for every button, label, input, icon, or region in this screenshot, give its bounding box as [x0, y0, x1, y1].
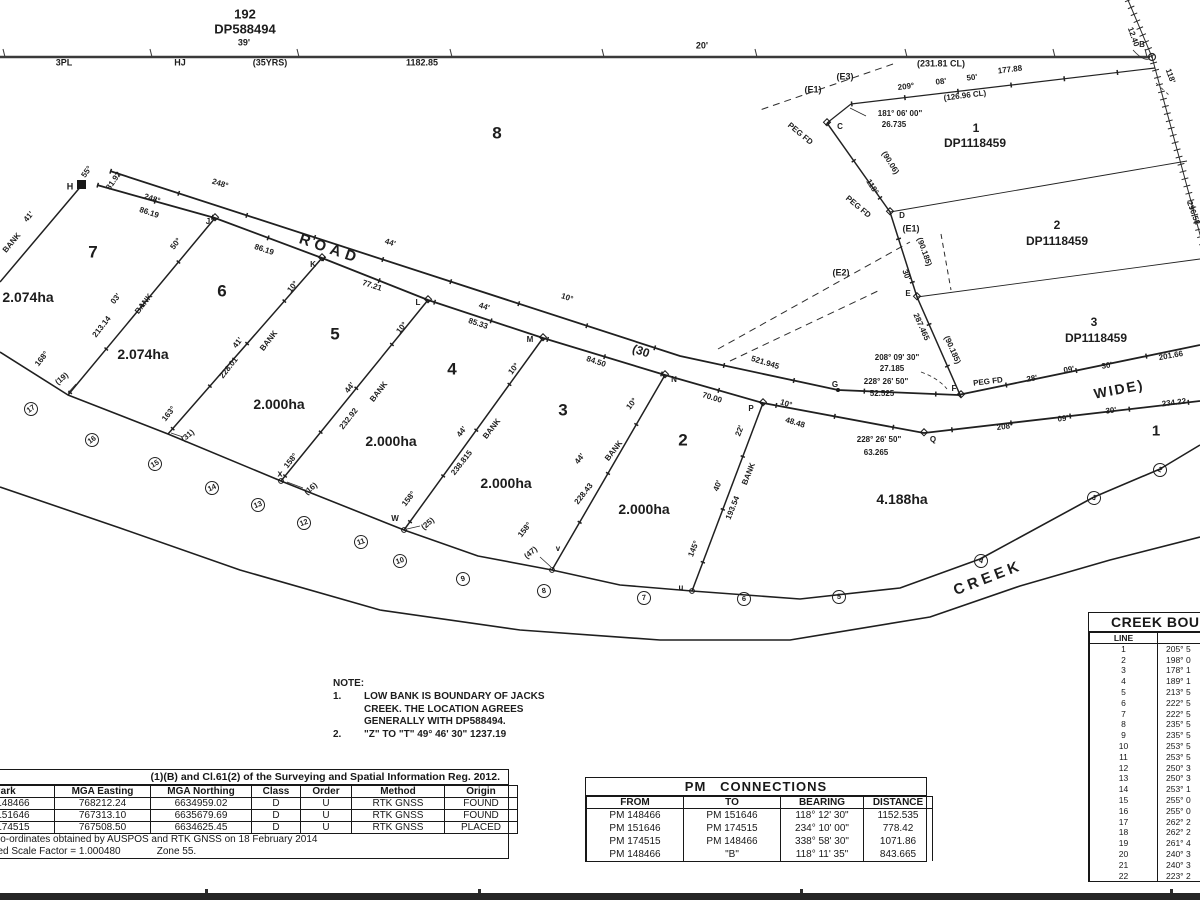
plan-label: C — [837, 123, 843, 131]
table-cell: PM 151646 — [684, 809, 781, 822]
table-cell: 2 — [1090, 654, 1158, 665]
scale-bar-tick — [205, 889, 208, 893]
table-row: 5213° 5 — [1090, 687, 1200, 698]
pm-connections-table: PM CONNECTIONSFROMTOBEARINGDISTANCEPM 14… — [585, 777, 927, 862]
creek-banks — [0, 352, 1200, 640]
table-row: 3178° 1 — [1090, 665, 1200, 676]
table-cell: 205° 5 — [1158, 644, 1200, 655]
table-row: PM 148466PM 151646118° 12' 30"1152.535 — [587, 809, 933, 822]
note-block: NOTE: 1. LOW BANK IS BOUNDARY OF JACKS C… — [333, 678, 545, 742]
note-item-text: "Z" TO "T" 49° 46' 30" 1237.19 — [364, 729, 506, 742]
plan-label: 4 — [447, 361, 456, 378]
plan-label: K — [310, 261, 316, 269]
table-cell: PM 148466 — [587, 809, 684, 822]
table-footer: Co-ordinates obtained by AUSPOS and RTK … — [0, 834, 508, 846]
plan-label: E — [905, 290, 910, 298]
plan-label: (E1) — [902, 225, 919, 234]
plan-label: 3 — [1091, 316, 1098, 328]
table-cell: 338° 58' 30" — [781, 835, 864, 848]
table-cell: 255° 0 — [1158, 805, 1200, 816]
table-cell: 843.665 — [864, 848, 933, 861]
table-row: PM 174515767508.506634625.45DURTK GNSSPL… — [0, 822, 518, 834]
table-cell: 234° 10' 00" — [781, 822, 864, 835]
table-cell: FOUND — [445, 810, 518, 822]
table-row: PM 148466"B"118° 11' 35"843.665 — [587, 848, 933, 861]
column-header: Class — [252, 786, 301, 798]
column-header: Method — [352, 786, 445, 798]
column-header: MGA Easting — [55, 786, 151, 798]
plan-label: P — [748, 405, 753, 413]
column-header: DISTANCE — [864, 797, 933, 809]
table-cell: PM 174515 — [684, 822, 781, 835]
column-header: Origin — [445, 786, 518, 798]
table-cell: 118° 11' 35" — [781, 848, 864, 861]
table-row: 11253° 5 — [1090, 751, 1200, 762]
plan-label: 208° 09' 30" — [875, 354, 919, 362]
table-row: 1205° 5 — [1090, 644, 1200, 655]
table-cell: PM 148466 — [587, 848, 684, 861]
label-leaders — [68, 384, 551, 567]
table-cell: PM 151646 — [0, 810, 55, 822]
plan-label: 1 — [1152, 424, 1160, 439]
plan-label: 50' — [966, 73, 978, 82]
plan-label: F — [952, 385, 957, 393]
table-cell: 213° 5 — [1158, 687, 1200, 698]
column-header: LINE — [1090, 633, 1158, 644]
table-cell: 16 — [1090, 805, 1158, 816]
plan-label: 26.735 — [882, 121, 906, 129]
table-title: PM CONNECTIONS — [586, 778, 926, 796]
table-cell: 6634959.02 — [151, 798, 252, 810]
station-number: 6 — [737, 592, 751, 606]
plan-label: W — [391, 515, 399, 523]
table-row: 4189° 1 — [1090, 676, 1200, 687]
column-header: BEARING — [781, 797, 864, 809]
table-cell: 222° 5 — [1158, 697, 1200, 708]
plan-label: 08' — [935, 77, 947, 86]
table-cell: 17 — [1090, 816, 1158, 827]
note-heading: NOTE: — [333, 678, 545, 691]
plan-label: 39' — [238, 39, 250, 48]
plan-label: 5 — [330, 326, 339, 343]
table-cell: D — [252, 822, 301, 834]
column-header: Order — [301, 786, 352, 798]
road-lines — [97, 171, 1200, 433]
table-cell: 3 — [1090, 665, 1158, 676]
plan-label: 7 — [88, 244, 97, 261]
table-cell: 235° 5 — [1158, 719, 1200, 730]
plan-label: H — [67, 183, 74, 192]
table-cell: PM 174515 — [587, 835, 684, 848]
table-cell: 6 — [1090, 697, 1158, 708]
plan-label: 2.074ha — [2, 290, 53, 304]
table-cell: 235° 5 — [1158, 730, 1200, 741]
table-title: (1)(B) and Cl.61(2) of the Surveying and… — [0, 770, 508, 785]
table-cell: 4 — [1090, 676, 1158, 687]
table-cell: PM 151646 — [587, 822, 684, 835]
table-cell: U — [301, 798, 352, 810]
table-cell: 1 — [1090, 644, 1158, 655]
plan-label: 4.188ha — [876, 492, 927, 506]
plan-label: (E1) — [804, 86, 821, 95]
table-cell: 11 — [1090, 751, 1158, 762]
scale-bar-tick — [800, 889, 803, 893]
table-row: 18262° 2 — [1090, 827, 1200, 838]
survey-marks-table: (1)(B) and Cl.61(2) of the Surveying and… — [0, 769, 509, 859]
table-cell: 5 — [1090, 687, 1158, 698]
table-row: 13250° 3 — [1090, 773, 1200, 784]
table-row: PM 151646PM 174515234° 10' 00"778.42 — [587, 822, 933, 835]
plan-label: 1 — [973, 122, 980, 134]
table-cell: 21 — [1090, 859, 1158, 870]
note-item-text: GENERALLY WITH DP588494. — [364, 716, 506, 729]
scale-bar-tick — [478, 889, 481, 893]
table-cell: 14 — [1090, 784, 1158, 795]
table-cell: 6635679.69 — [151, 810, 252, 822]
table-cell: 253° 1 — [1158, 784, 1200, 795]
plan-label: 1182.85 — [406, 59, 438, 68]
column-header: BEARING — [1158, 633, 1200, 644]
table-cell: PLACED — [445, 822, 518, 834]
plan-label: 30' — [1105, 406, 1117, 415]
table-cell: D — [252, 798, 301, 810]
column-header: FROM — [587, 797, 684, 809]
plan-label: 2.074ha — [117, 347, 168, 361]
scale-bar — [0, 893, 1200, 900]
top-boundary-line — [0, 49, 1150, 57]
table-cell: 12 — [1090, 762, 1158, 773]
table-cell: 240° 3 — [1158, 849, 1200, 860]
table-cell: 255° 0 — [1158, 795, 1200, 806]
table-cell: RTK GNSS — [352, 810, 445, 822]
table-row: PM 151646767313.106635679.69DURTK GNSSFO… — [0, 810, 518, 822]
table-row: 9235° 5 — [1090, 730, 1200, 741]
table-cell: U — [301, 810, 352, 822]
plan-label: N — [671, 376, 677, 384]
table-row: 14253° 1 — [1090, 784, 1200, 795]
plan-label: L — [416, 299, 421, 307]
column-header: Mark — [0, 786, 55, 798]
table-footer: Combined Scale Factor = 1.000480 Zone 55… — [0, 846, 508, 858]
plan-label: Q — [930, 436, 936, 444]
table-row: 17262° 2 — [1090, 816, 1200, 827]
plan-label: v — [556, 545, 560, 553]
plan-label: 6 — [217, 283, 226, 300]
plan-label: (E3) — [836, 73, 853, 82]
plan-label: 2.000ha — [480, 476, 531, 490]
plan-label: 2.000ha — [365, 434, 416, 448]
plan-label: G — [832, 381, 838, 389]
plan-label: M — [527, 336, 534, 344]
table-cell: 178° 1 — [1158, 665, 1200, 676]
plan-label: 2 — [678, 432, 687, 449]
table-row: 22223° 2 — [1090, 870, 1200, 881]
table-cell: 7 — [1090, 708, 1158, 719]
note-item-text: CREEK. THE LOCATION AGREES — [364, 704, 523, 717]
table-cell: 15 — [1090, 795, 1158, 806]
table-cell: PM 174515 — [0, 822, 55, 834]
table-cell: 189° 1 — [1158, 676, 1200, 687]
table-title: CREEK BOUNDARY — [1089, 613, 1200, 632]
plan-label: 63.265 — [864, 449, 888, 457]
table-cell: PM 148466 — [0, 798, 55, 810]
plan-label: HJ — [174, 59, 186, 68]
note-item-number: 1. — [333, 691, 364, 704]
table-cell: 262° 2 — [1158, 827, 1200, 838]
plan-label: (231.81 CL) — [917, 60, 965, 69]
table-cell: 8 — [1090, 719, 1158, 730]
survey-plan-canvas: 192DP58849439'3PLHJ(35YRS)1182.8520'(231… — [0, 0, 1200, 900]
table-cell: D — [252, 810, 301, 822]
table-cell: 20 — [1090, 849, 1158, 860]
table-row: PM 174515PM 148466338° 58' 30"1071.86 — [587, 835, 933, 848]
table-cell: "B" — [684, 848, 781, 861]
table-row: 2198° 0 — [1090, 654, 1200, 665]
table-row: 8235° 5 — [1090, 719, 1200, 730]
table-row: 10253° 5 — [1090, 741, 1200, 752]
plan-label: D — [899, 212, 905, 220]
table-cell: 6634625.45 — [151, 822, 252, 834]
table-cell: 262° 2 — [1158, 816, 1200, 827]
note-item-text: LOW BANK IS BOUNDARY OF JACKS — [364, 691, 545, 704]
table-row: 16255° 0 — [1090, 805, 1200, 816]
note-item-number: 2. — [333, 729, 364, 742]
plan-label: (35YRS) — [253, 59, 288, 68]
scale-bar-tick — [1170, 889, 1173, 893]
table-row: 20240° 3 — [1090, 849, 1200, 860]
table-row: 15255° 0 — [1090, 795, 1200, 806]
table-cell: 9 — [1090, 730, 1158, 741]
table-cell: RTK GNSS — [352, 798, 445, 810]
plan-label: 2.000ha — [618, 502, 669, 516]
plan-label: 181° 06' 00" — [878, 110, 922, 118]
table-cell: 253° 5 — [1158, 751, 1200, 762]
table-row: 6222° 5 — [1090, 697, 1200, 708]
plan-label: DP1118459 — [1065, 332, 1127, 344]
plan-label: x — [277, 470, 282, 479]
plan-label: 27.185 — [880, 365, 904, 373]
plan-label: (E2) — [832, 269, 849, 278]
table-cell: 767313.10 — [55, 810, 151, 822]
table-cell: 240° 3 — [1158, 859, 1200, 870]
table-cell: 223° 2 — [1158, 870, 1200, 881]
table-cell: 1071.86 — [864, 835, 933, 848]
table-cell: 261° 4 — [1158, 838, 1200, 849]
plan-label: 52.525 — [870, 390, 894, 398]
plan-label: 09' — [1057, 414, 1069, 423]
column-header: MGA Northing — [151, 786, 252, 798]
table-cell: 778.42 — [864, 822, 933, 835]
table-cell: 1152.535 — [864, 809, 933, 822]
table-cell: FOUND — [445, 798, 518, 810]
table-cell: 198° 0 — [1158, 654, 1200, 665]
table-cell: 253° 5 — [1158, 741, 1200, 752]
table-cell: 13 — [1090, 773, 1158, 784]
table-cell: 22 — [1090, 870, 1158, 881]
table-cell: 767508.50 — [55, 822, 151, 834]
table-row: 7222° 5 — [1090, 708, 1200, 719]
plan-label: 3 — [558, 402, 567, 419]
table-cell: 18 — [1090, 827, 1158, 838]
plan-label: 228° 26' 50" — [857, 436, 901, 444]
plan-label: 2.000ha — [253, 397, 304, 411]
survey-marks — [77, 119, 965, 594]
plan-label: 192 — [234, 8, 256, 21]
table-cell: 19 — [1090, 838, 1158, 849]
plan-label: J — [206, 218, 210, 226]
creek-boundary-table: CREEK BOUNDARYLINEBEARING1205° 52198° 03… — [1088, 612, 1200, 882]
table-cell: 250° 3 — [1158, 762, 1200, 773]
table-cell: 222° 5 — [1158, 708, 1200, 719]
table-cell: 250° 3 — [1158, 773, 1200, 784]
table-cell: 118° 12' 30" — [781, 809, 864, 822]
plan-label: DP588494 — [214, 23, 275, 36]
table-cell: PM 148466 — [684, 835, 781, 848]
table-row: 19261° 4 — [1090, 838, 1200, 849]
plan-label: 8 — [492, 125, 501, 142]
plan-drawing — [0, 0, 1200, 900]
table-row: PM 148466768212.246634959.02DURTK GNSSFO… — [0, 798, 518, 810]
plan-label: DP1118459 — [1026, 235, 1088, 247]
table-row: 12250° 3 — [1090, 762, 1200, 773]
table-row: 21240° 3 — [1090, 859, 1200, 870]
column-header: TO — [684, 797, 781, 809]
plan-label: 2 — [1054, 219, 1061, 231]
plan-label: DP1118459 — [944, 137, 1006, 149]
plan-label: u — [679, 584, 684, 592]
plan-label: 3PL — [56, 59, 73, 68]
plan-label: 228° 26' 50" — [864, 378, 908, 386]
table-cell: 768212.24 — [55, 798, 151, 810]
table-cell: RTK GNSS — [352, 822, 445, 834]
plan-label: 20' — [696, 42, 708, 51]
table-cell: U — [301, 822, 352, 834]
table-cell: 10 — [1090, 741, 1158, 752]
